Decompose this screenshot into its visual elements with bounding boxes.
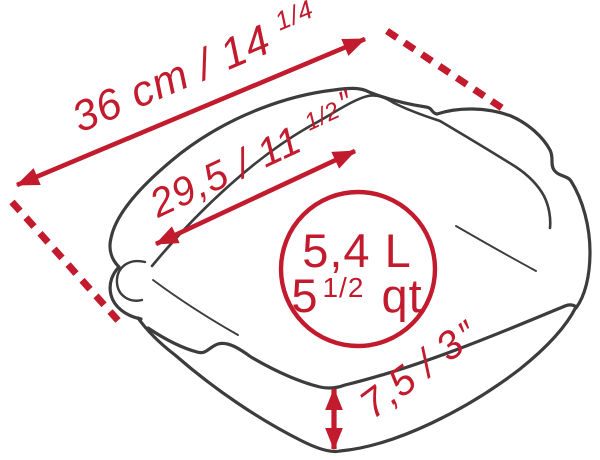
outer-dimension-dashed-extension-left — [12, 202, 123, 326]
height-dimension-label: 7,5 / 3″ — [352, 311, 486, 428]
dish-interior-edge-left — [153, 280, 238, 335]
dish-interior-edge-right — [456, 226, 536, 271]
outer-dimension-dashed-extension-right — [387, 31, 505, 110]
dish-left-handle-curl — [117, 261, 145, 301]
diagram-canvas: 36 cm / 14 1/4″ 29,5 / 11 1/2″ 7,5 / 3″ … — [0, 0, 600, 460]
dish-dimension-diagram: 36 cm / 14 1/4″ 29,5 / 11 1/2″ 7,5 / 3″ … — [0, 0, 600, 460]
capacity-quarts-label: 51/2 qt — [291, 269, 422, 322]
